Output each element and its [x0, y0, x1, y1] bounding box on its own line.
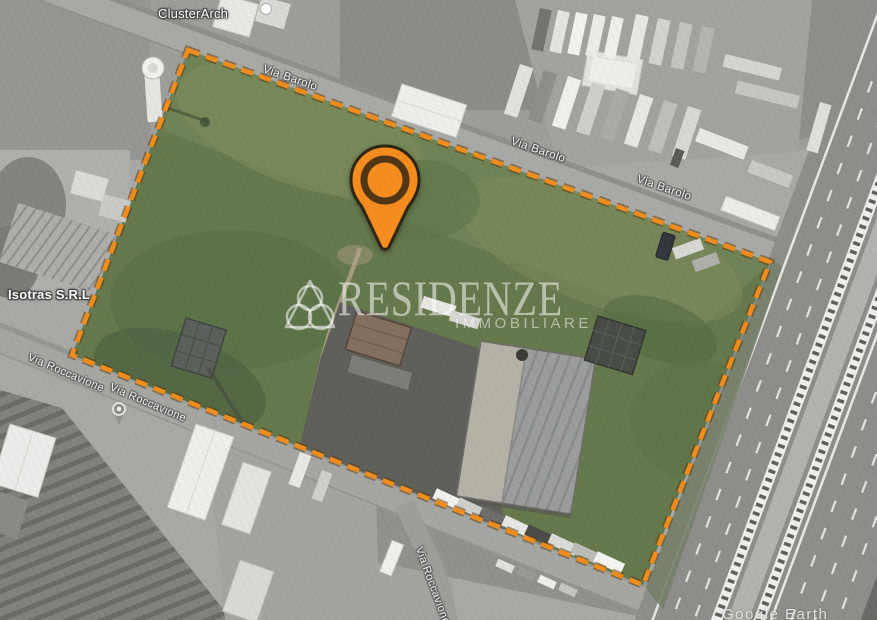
watermark-subtitle-text: IMMOBILIARE [455, 316, 592, 331]
satellite-map-canvas: ClusterArch Via Barolo Via Barolo Via Ba… [0, 0, 877, 620]
warehouse-building [456, 341, 596, 518]
poi-dot-icon [261, 4, 272, 15]
triquetra-logo-icon [283, 276, 337, 332]
place-label-clusterarch: ClusterArch [158, 7, 228, 20]
map-pin-icon [346, 142, 424, 262]
attribution-text: Google Earth [722, 606, 828, 620]
business-label-isotras: Isotras S.R.L [8, 288, 90, 301]
